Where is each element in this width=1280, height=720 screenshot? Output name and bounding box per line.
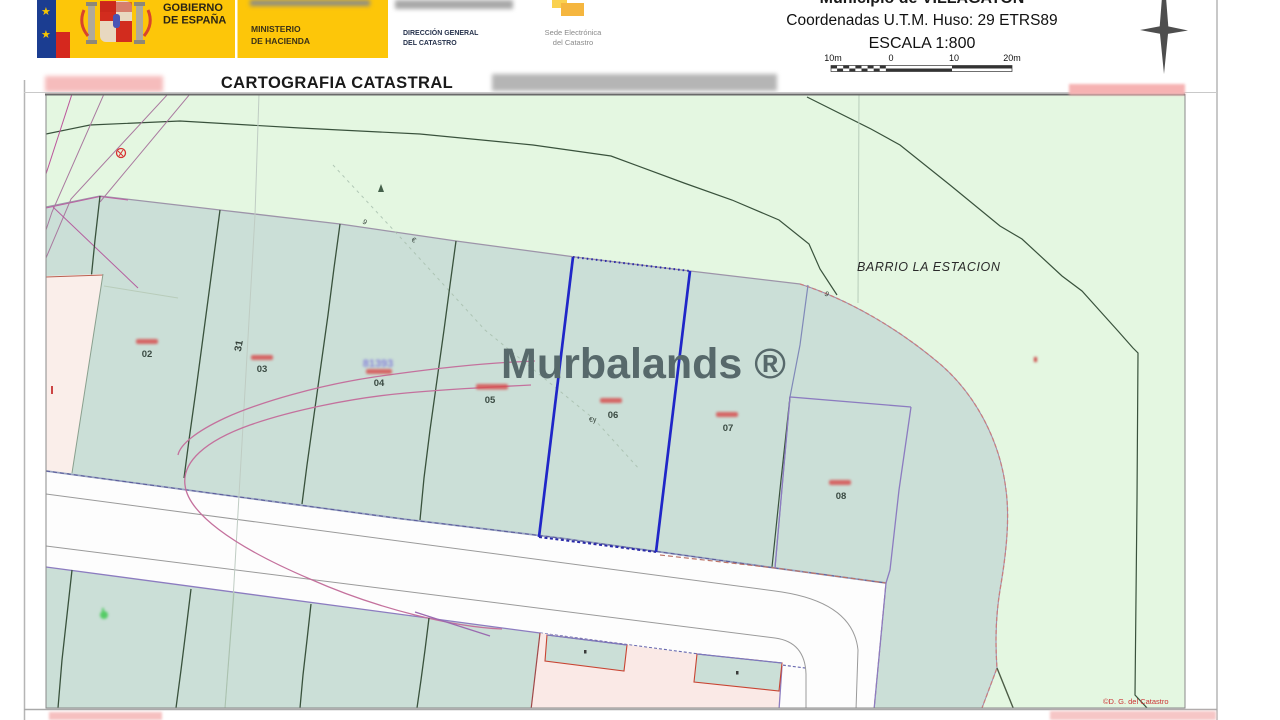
svg-text:del Catastro: del Catastro xyxy=(553,38,593,47)
svg-text:04: 04 xyxy=(374,378,385,389)
svg-text:DE HACIENDA: DE HACIENDA xyxy=(251,36,310,46)
svg-text:0: 0 xyxy=(888,53,893,63)
svg-text:CARTOGRAFIA CATASTRAL: CARTOGRAFIA CATASTRAL xyxy=(221,74,453,92)
svg-text:07: 07 xyxy=(723,423,734,434)
svg-text:DE ESPAÑA: DE ESPAÑA xyxy=(163,14,226,27)
svg-text:10m: 10m xyxy=(824,53,842,63)
svg-text:€y: €y xyxy=(589,417,597,424)
svg-text:06: 06 xyxy=(608,410,619,421)
svg-text:MINISTERIO: MINISTERIO xyxy=(251,24,301,34)
svg-text:Murbalands ®: Murbalands ® xyxy=(501,340,786,388)
svg-text:ESCALA 1:800: ESCALA 1:800 xyxy=(869,35,976,52)
svg-text:10: 10 xyxy=(949,53,959,63)
svg-text:Sede Electrónica: Sede Electrónica xyxy=(545,28,603,37)
svg-text:03: 03 xyxy=(257,364,268,375)
svg-text:20m: 20m xyxy=(1003,53,1021,63)
svg-text:DIRECCIÓN GENERAL: DIRECCIÓN GENERAL xyxy=(403,28,479,37)
svg-text:05: 05 xyxy=(485,395,496,406)
svg-text:02: 02 xyxy=(142,349,153,360)
svg-text:Municipio de VILLAGATON: Municipio de VILLAGATON xyxy=(820,0,1025,7)
svg-text:81393: 81393 xyxy=(363,358,394,370)
svg-text:Coordenadas U.T.M. Huso: 29 ET: Coordenadas U.T.M. Huso: 29 ETRS89 xyxy=(786,12,1057,29)
svg-text:08: 08 xyxy=(836,491,847,502)
svg-text:★: ★ xyxy=(41,6,51,18)
svg-text:BARRIO LA ESTACION: BARRIO LA ESTACION xyxy=(857,260,1001,274)
svg-text:GOBIERNO: GOBIERNO xyxy=(163,2,223,14)
svg-text:DEL CATASTRO: DEL CATASTRO xyxy=(403,40,457,47)
svg-text:★: ★ xyxy=(41,29,51,41)
svg-text:©D. G. del Catastro: ©D. G. del Catastro xyxy=(1103,697,1169,706)
